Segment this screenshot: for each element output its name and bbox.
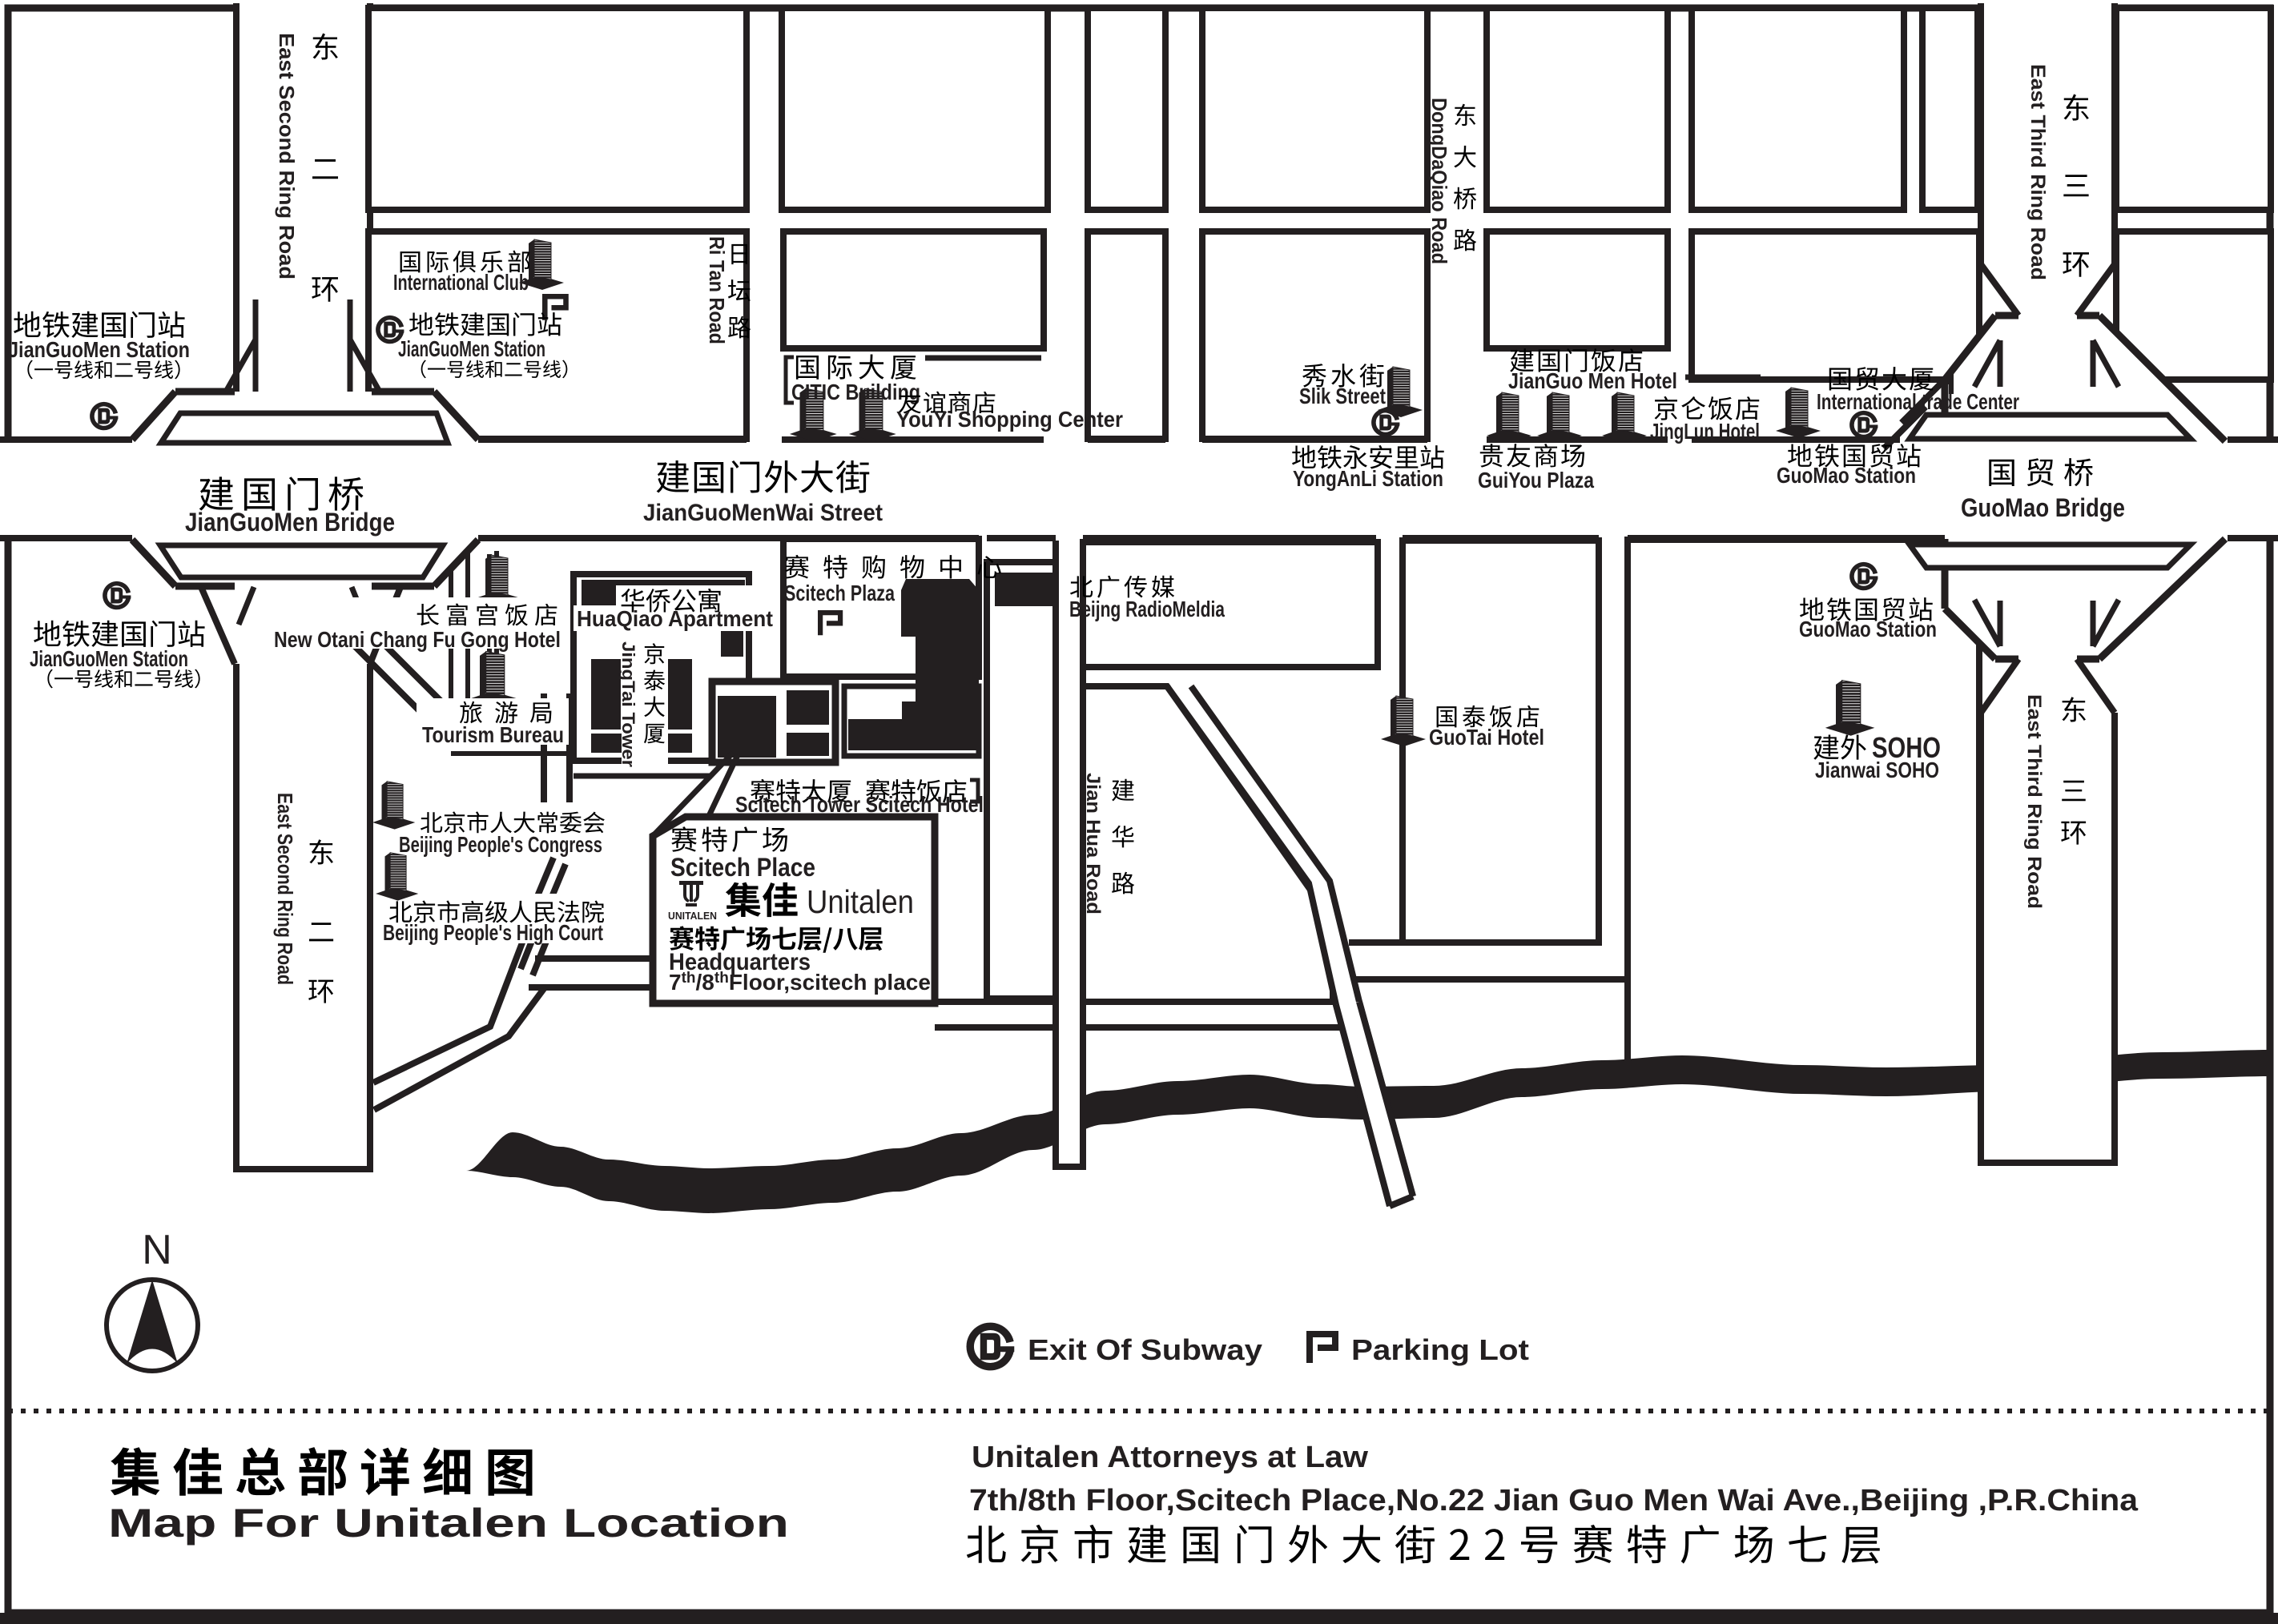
svg-text:Tourism Bureau: Tourism Bureau — [422, 722, 564, 747]
svg-text:Parking Lot: Parking Lot — [1351, 1333, 1529, 1366]
svg-text:Scitech Plaza: Scitech Plaza — [784, 581, 895, 605]
svg-text:East Second Ring Road: East Second Ring Road — [275, 33, 299, 279]
svg-text:N: N — [142, 1227, 172, 1273]
svg-text:JingLun Hotel: JingLun Hotel — [1650, 419, 1760, 444]
svg-text:YongAnLi Station: YongAnLi Station — [1293, 466, 1443, 491]
svg-text:Beijing People's Congress: Beijing People's Congress — [399, 832, 602, 857]
svg-text:Beijng RadioMeldia: Beijng RadioMeldia — [1069, 597, 1225, 621]
svg-text:7th/8thFloor,scitech place: 7th/8thFloor,scitech place — [669, 970, 931, 995]
svg-text:JianGuo Men Hotel: JianGuo Men Hotel — [1508, 368, 1677, 393]
svg-text:Scitech Tower Scitech Hotel: Scitech Tower Scitech Hotel — [735, 792, 984, 817]
svg-text:JingTai Tower: JingTai Tower — [618, 641, 638, 767]
svg-text:DongDaQiao Road: DongDaQiao Road — [1427, 98, 1451, 264]
svg-text:Map For Unitalen Location: Map For Unitalen Location — [108, 1501, 789, 1546]
svg-text:JianGuoMen Station: JianGuoMen Station — [398, 336, 545, 361]
svg-text:Beijing People's High Court: Beijing People's High Court — [383, 920, 603, 945]
svg-text:Slik Street: Slik Street — [1299, 384, 1386, 408]
svg-text:Unitalen Attorneys at Law: Unitalen Attorneys at Law — [972, 1441, 1368, 1474]
svg-text:Jian Hua Road: Jian Hua Road — [1082, 773, 1104, 915]
svg-text:7th/8th Floor,Scitech Place,No: 7th/8th Floor,Scitech Place,No.22 Jian G… — [969, 1484, 2139, 1517]
svg-text:International trade Center: International trade Center — [1817, 389, 2019, 414]
svg-text:Ri Tan Road: Ri Tan Road — [705, 236, 729, 344]
svg-text:East Second Ring Road: East Second Ring Road — [273, 793, 297, 985]
svg-text:UNITALEN: UNITALEN — [668, 910, 717, 922]
svg-text:HuaQiao Apartment: HuaQiao Apartment — [577, 606, 773, 631]
svg-text:GuiYou Plaza: GuiYou Plaza — [1478, 468, 1594, 492]
svg-text:GuoMao Bridge: GuoMao Bridge — [1961, 493, 2125, 522]
svg-text:JianGuoMenWai Street: JianGuoMenWai Street — [643, 500, 883, 526]
svg-text:Scitech Place: Scitech Place — [670, 853, 815, 882]
svg-text:East Third Ring Road: East Third Ring Road — [2023, 694, 2045, 909]
svg-text:International Club: International Club — [393, 270, 529, 295]
svg-text:GuoMao Station: GuoMao Station — [1777, 463, 1916, 488]
svg-text:JianGuoMen Bridge: JianGuoMen Bridge — [185, 508, 395, 537]
svg-text:CITIC Building: CITIC Building — [791, 380, 920, 404]
svg-text:Jianwai SOHO: Jianwai SOHO — [1815, 758, 1939, 782]
svg-text:Exit Of Subway: Exit Of Subway — [1028, 1333, 1262, 1366]
svg-text:YouYi Shopping Center: YouYi Shopping Center — [896, 407, 1123, 432]
svg-text:Unitalen: Unitalen — [807, 883, 914, 920]
svg-text:JianGuoMen Station: JianGuoMen Station — [30, 646, 188, 671]
svg-text:New Otani Chang Fu Gong Hotel: New Otani Chang Fu Gong Hotel — [274, 627, 561, 652]
svg-text:GuoMao Station: GuoMao Station — [1799, 617, 1937, 641]
svg-text:East Third Ring Road: East Third Ring Road — [2026, 64, 2049, 280]
svg-text:JianGuoMen Station: JianGuoMen Station — [8, 337, 190, 362]
svg-text:GuoTai Hotel: GuoTai Hotel — [1429, 725, 1544, 750]
